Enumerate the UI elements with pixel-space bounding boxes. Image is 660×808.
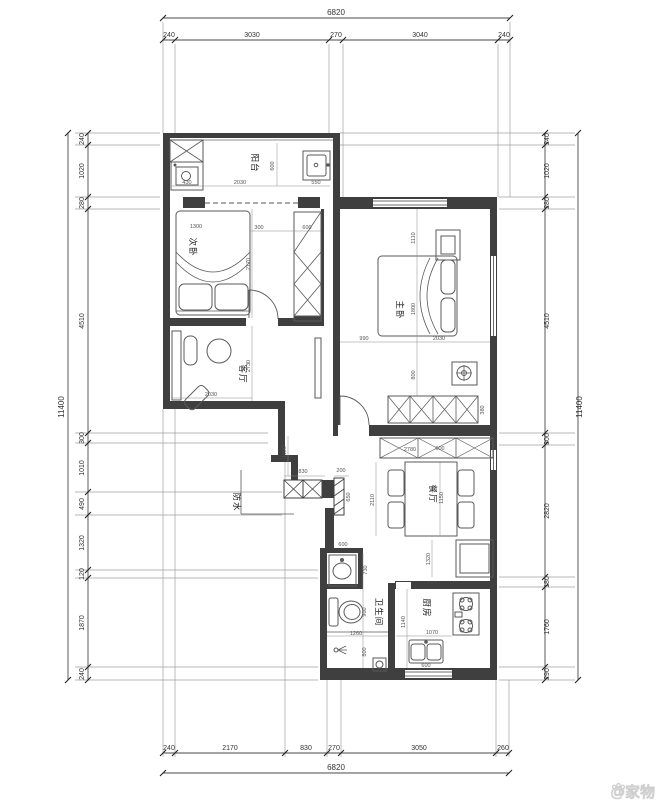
dim-dining-width: 2110 <box>370 494 376 506</box>
dim-bed2-width: 1300 <box>190 224 202 230</box>
dim-kitchen-w: 1070 <box>426 630 438 636</box>
dim-left-3: 4510 <box>79 313 86 329</box>
dim-right-7: 1760 <box>544 619 551 635</box>
dim-dining-cab-a: 2780 <box>404 447 416 453</box>
kitchen-sink <box>409 640 443 663</box>
room-label-bathroom: 卫生间 <box>374 598 384 627</box>
bed-master <box>378 256 457 336</box>
dim-living-width: 2030 <box>205 392 217 398</box>
dim-living-depth: 2730 <box>246 360 252 372</box>
room-label-bedroom2: 次卧 <box>188 237 198 256</box>
dim-right-6: 180 <box>544 576 551 588</box>
dim-left-0: 240 <box>79 133 86 145</box>
room-label-dining: 餐厅 <box>428 484 438 503</box>
floor-plan-page: 6820 240 3030 270 3040 240 240 2170 830 … <box>0 0 660 808</box>
dim-dining-cab-b: 600 <box>435 446 444 452</box>
dim-bed2-length: 2170 <box>246 258 252 270</box>
dim-balcony-depth: 600 <box>270 161 276 170</box>
dim-bed2-closet: 600 <box>302 225 311 231</box>
dim-right-4: 300 <box>544 433 551 445</box>
dim-bath-width: 1260 <box>350 631 362 637</box>
door-secondary-bedroom <box>249 290 278 319</box>
dim-fridge-gap: 1320 <box>426 553 432 565</box>
dim-right-total: 11400 <box>575 396 584 418</box>
dim-right-0: 240 <box>544 133 551 145</box>
dim-bottom-total: 6820 <box>327 763 345 772</box>
dimension-text-left: 11400 240 1020 280 4510 300 1010 490 132… <box>57 133 86 680</box>
dim-balcony-sink: 550 <box>311 180 320 186</box>
hatched-walls <box>284 478 344 515</box>
floor-plan-drawing: 6820 240 3030 270 3040 240 240 2170 830 … <box>0 0 660 808</box>
dim-left-7: 1320 <box>79 535 86 551</box>
dim-kitchen-sink: 600 <box>421 663 430 669</box>
dim-left-6: 490 <box>79 498 86 510</box>
dim-top-1: 3030 <box>244 32 260 39</box>
dim-bath-basin-d: 730 <box>363 565 369 574</box>
dim-left-2: 280 <box>79 197 86 209</box>
side-table <box>207 339 231 363</box>
dim-right-1: 1020 <box>544 163 551 179</box>
door-master <box>340 396 369 425</box>
dim-bath-basin: 600 <box>338 542 347 548</box>
dim-left-9: 1870 <box>79 615 86 631</box>
dim-master-top: 1110 <box>411 232 417 243</box>
dim-left-total: 11400 <box>57 396 66 418</box>
dim-bottom-3: 270 <box>328 745 340 752</box>
dim-balcony-width: 2030 <box>234 180 246 186</box>
balcony-cabinet <box>170 140 203 162</box>
dim-bottom-0: 240 <box>163 745 175 752</box>
dim-hall-side: 650 <box>346 492 352 501</box>
dim-bottom-4: 3050 <box>411 745 427 752</box>
dim-hall-w: 830 <box>298 469 307 475</box>
dim-hall-opening: 200 <box>336 468 345 474</box>
dim-balcony-washer: 430 <box>182 180 191 186</box>
dim-left-5: 1010 <box>79 460 86 476</box>
dim-left-4: 300 <box>79 432 86 444</box>
sofa <box>172 331 210 411</box>
dim-left-1: 1020 <box>79 163 86 179</box>
toilet <box>329 598 363 626</box>
dim-bottom-5: 260 <box>497 745 509 752</box>
dim-bottom-1: 2170 <box>222 745 238 752</box>
dim-master-wardrobe: 380 <box>480 405 486 414</box>
room-label-master: 主卧 <box>395 300 405 319</box>
dim-left-10: 240 <box>79 668 86 680</box>
dim-top-0: 240 <box>163 32 175 39</box>
dim-top-4: 240 <box>498 32 510 39</box>
dim-master-low: 800 <box>411 370 417 379</box>
balcony-sink <box>303 151 330 180</box>
dim-dining-depth: 1150 <box>439 492 445 504</box>
wardrobe-master <box>388 396 478 423</box>
room-label-balcony: 阳台 <box>250 153 260 172</box>
bed-secondary <box>176 211 250 315</box>
fridge <box>456 540 493 577</box>
dim-bottom-2: 830 <box>300 745 312 752</box>
dim-bath-shower: 800 <box>362 647 368 656</box>
dim-master-bed: 2030 <box>433 336 445 342</box>
dim-kitchen-d: 1140 <box>401 616 407 628</box>
paw-icon <box>610 781 627 798</box>
tv-board-living <box>315 338 321 398</box>
wash-basin <box>329 555 356 586</box>
room-label-kitchen: 厨房 <box>422 598 432 617</box>
dim-bath-toilet: 900 <box>362 607 368 616</box>
dim-left-8: 120 <box>79 568 86 580</box>
dim-right-5: 2820 <box>544 503 551 519</box>
dim-top-3: 3040 <box>412 32 428 39</box>
shower-head-icon <box>334 646 347 654</box>
dim-bed2-gap: 300 <box>254 225 263 231</box>
stove <box>453 593 479 635</box>
dimension-text-bottom: 240 2170 830 270 3050 260 6820 <box>163 745 509 772</box>
dim-right-2: 280 <box>544 197 551 209</box>
dim-hall-v: 1100 <box>282 446 288 458</box>
dim-master-left: 990 <box>359 336 368 342</box>
dim-master-mid: 1800 <box>411 303 417 315</box>
dim-right-8: 290 <box>544 668 551 680</box>
watermark: @家物 <box>610 781 655 802</box>
dim-top-2: 270 <box>330 32 342 39</box>
dimension-text-top: 6820 240 3030 270 3040 240 <box>163 8 510 39</box>
dim-top-total: 6820 <box>327 8 345 17</box>
waterproof-label: 防水 <box>232 492 242 511</box>
dim-right-3: 4510 <box>544 313 551 329</box>
floor-drain-master <box>452 362 477 385</box>
